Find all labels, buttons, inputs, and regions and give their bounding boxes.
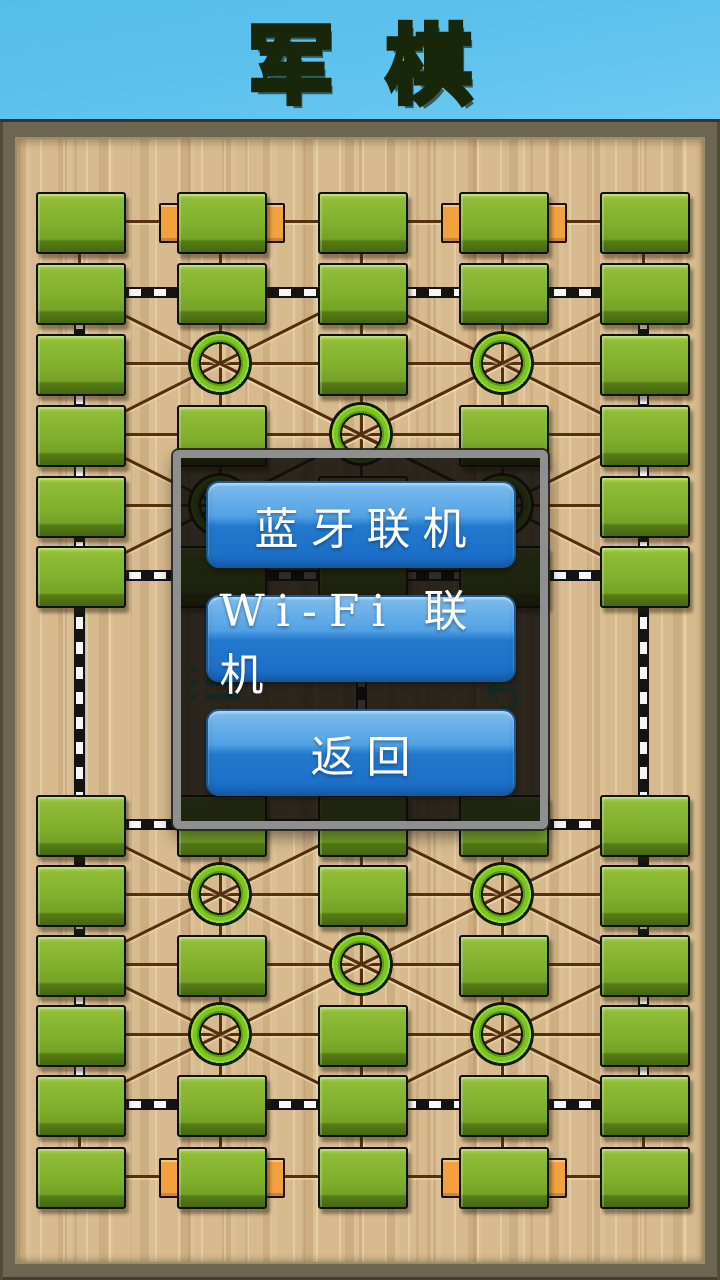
board-piece[interactable] (600, 795, 690, 857)
camp-circle (329, 932, 393, 996)
board-piece[interactable] (600, 405, 690, 467)
board-piece[interactable] (600, 476, 690, 538)
board-piece[interactable] (318, 192, 408, 254)
board-piece[interactable] (600, 1147, 690, 1209)
board-piece[interactable] (318, 1147, 408, 1209)
camp-circle (188, 1002, 252, 1066)
board-piece[interactable] (36, 405, 126, 467)
board-piece[interactable] (318, 263, 408, 325)
board-piece[interactable] (36, 1075, 126, 1137)
board-piece[interactable] (36, 1005, 126, 1067)
camp-circle (188, 331, 252, 395)
board-piece[interactable] (459, 192, 549, 254)
board-piece[interactable] (459, 263, 549, 325)
board-piece[interactable] (600, 1075, 690, 1137)
board-piece[interactable] (177, 263, 267, 325)
board-piece[interactable] (600, 263, 690, 325)
app-screen: 军棋 蓝牙联机 Wi-Fi 联机 返回 (0, 0, 720, 1280)
board-piece[interactable] (177, 1075, 267, 1137)
board-piece[interactable] (459, 935, 549, 997)
board-piece[interactable] (36, 935, 126, 997)
board-piece[interactable] (36, 795, 126, 857)
board-piece[interactable] (177, 1147, 267, 1209)
bluetooth-connect-button[interactable]: 蓝牙联机 (206, 481, 516, 568)
board-piece[interactable] (459, 1075, 549, 1137)
board-piece[interactable] (600, 546, 690, 608)
camp-circle (188, 862, 252, 926)
board-piece[interactable] (36, 263, 126, 325)
board-piece[interactable] (318, 1075, 408, 1137)
board-piece[interactable] (36, 334, 126, 396)
board-piece[interactable] (177, 935, 267, 997)
board-piece[interactable] (600, 1005, 690, 1067)
back-button[interactable]: 返回 (206, 709, 516, 796)
board-piece[interactable] (318, 865, 408, 927)
connection-dialog: 蓝牙联机 Wi-Fi 联机 返回 (173, 450, 548, 829)
board-piece[interactable] (600, 334, 690, 396)
board-piece[interactable] (36, 546, 126, 608)
board-piece[interactable] (36, 476, 126, 538)
camp-circle (470, 331, 534, 395)
board-piece[interactable] (600, 865, 690, 927)
board-piece[interactable] (177, 192, 267, 254)
board-piece[interactable] (600, 935, 690, 997)
board-piece[interactable] (459, 1147, 549, 1209)
wifi-connect-button[interactable]: Wi-Fi 联机 (206, 595, 516, 682)
board-piece[interactable] (36, 865, 126, 927)
board-piece[interactable] (318, 334, 408, 396)
board-piece[interactable] (36, 192, 126, 254)
board-piece[interactable] (36, 1147, 126, 1209)
camp-circle (470, 862, 534, 926)
camp-circle (470, 1002, 534, 1066)
board-piece[interactable] (318, 1005, 408, 1067)
board-piece[interactable] (600, 192, 690, 254)
